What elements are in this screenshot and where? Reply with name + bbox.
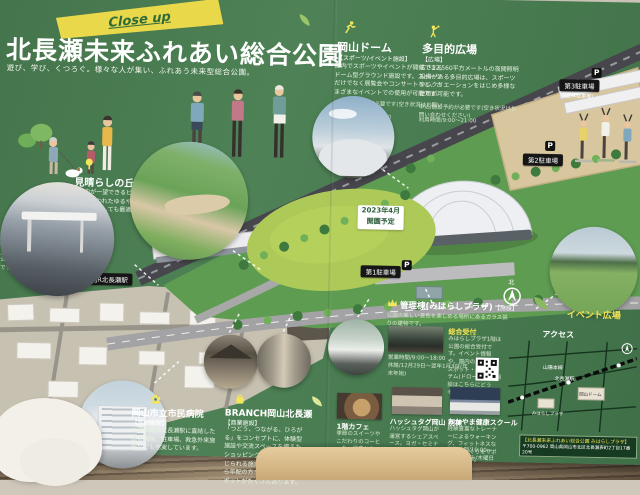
management-photo	[388, 326, 444, 353]
poster-curled-corner-inner	[20, 438, 90, 486]
wooden-stand	[256, 447, 472, 480]
school-photo	[450, 387, 501, 415]
parking2-label: 第2駐車場	[523, 153, 563, 166]
parking3-p-icon: P	[592, 68, 602, 78]
tree-icon	[83, 158, 96, 171]
svg-text:北: 北	[508, 278, 514, 286]
address-line2: 〒700-0962 岡山県岡山市北区北長瀬表町2丁目17番20号	[522, 443, 634, 457]
hill-section-title: 見晴らしの丘	[74, 173, 134, 189]
park-map-poster: 北	[0, 0, 640, 465]
plaza-section-tag: 【広場】	[422, 54, 446, 63]
access-label-line: 山陽本線	[543, 364, 563, 371]
parking3-label: 第3駐車場	[559, 79, 599, 92]
access-map: 山陽本線 北長瀬駅 岡山ドーム みはらしプラザ	[507, 338, 637, 435]
dome-photo	[312, 95, 396, 179]
runner-icon	[343, 21, 356, 34]
crown-icon	[387, 298, 398, 307]
flower-icon	[150, 394, 161, 405]
opening-line1: 2023年4月	[358, 205, 404, 217]
dome-section-tag: 【スポーツ/イベント施設】	[337, 53, 411, 63]
opening-notice: 2023年4月 開園予定	[357, 205, 403, 230]
plaza-section-desc: 広さ12,560平方メートルの夜間照明設備がある多目的広場は、スポーツやレクリエ…	[419, 64, 520, 101]
photo-scene: 北	[0, 0, 640, 480]
access-label-plaza: みはらしプラザ	[532, 411, 564, 418]
address-box: 【北長瀬未来ふれあい総合公園 みはらしプラザ】 〒700-0962 岡山県岡山市…	[519, 434, 637, 458]
cafe-photo	[337, 393, 383, 420]
parking1-label: 第1駐車場	[361, 265, 401, 278]
shopping-bag-icon	[234, 393, 246, 405]
parking3-sub-label: (立体駐車場)	[564, 92, 593, 100]
badminton-player-icon	[427, 25, 440, 38]
event-plaza-label: イベント広場	[567, 307, 621, 321]
access-label-station: 北長瀬駅	[554, 375, 574, 382]
parking2-p-icon: P	[545, 141, 555, 151]
management-section-tag: 【施設】	[494, 303, 518, 312]
close-up-label: Close up	[108, 9, 170, 30]
opening-line2: 開園予定	[358, 216, 404, 228]
hospital-section-desc: 山陽本線JR北長瀬駅に直結した総合病院。駐車場、救急外来施設なども充実しています…	[131, 427, 218, 455]
management-closed: 休館/12月29日〜翌年1月3日(年末年始)	[387, 363, 467, 380]
hashtag-photo	[392, 387, 443, 415]
family-with-dog-illustration	[17, 114, 112, 178]
management-section-title: 管理棟(みはらしプラザ)	[400, 299, 493, 313]
qr-code	[475, 358, 498, 381]
parking1-p-icon: P	[402, 260, 412, 270]
